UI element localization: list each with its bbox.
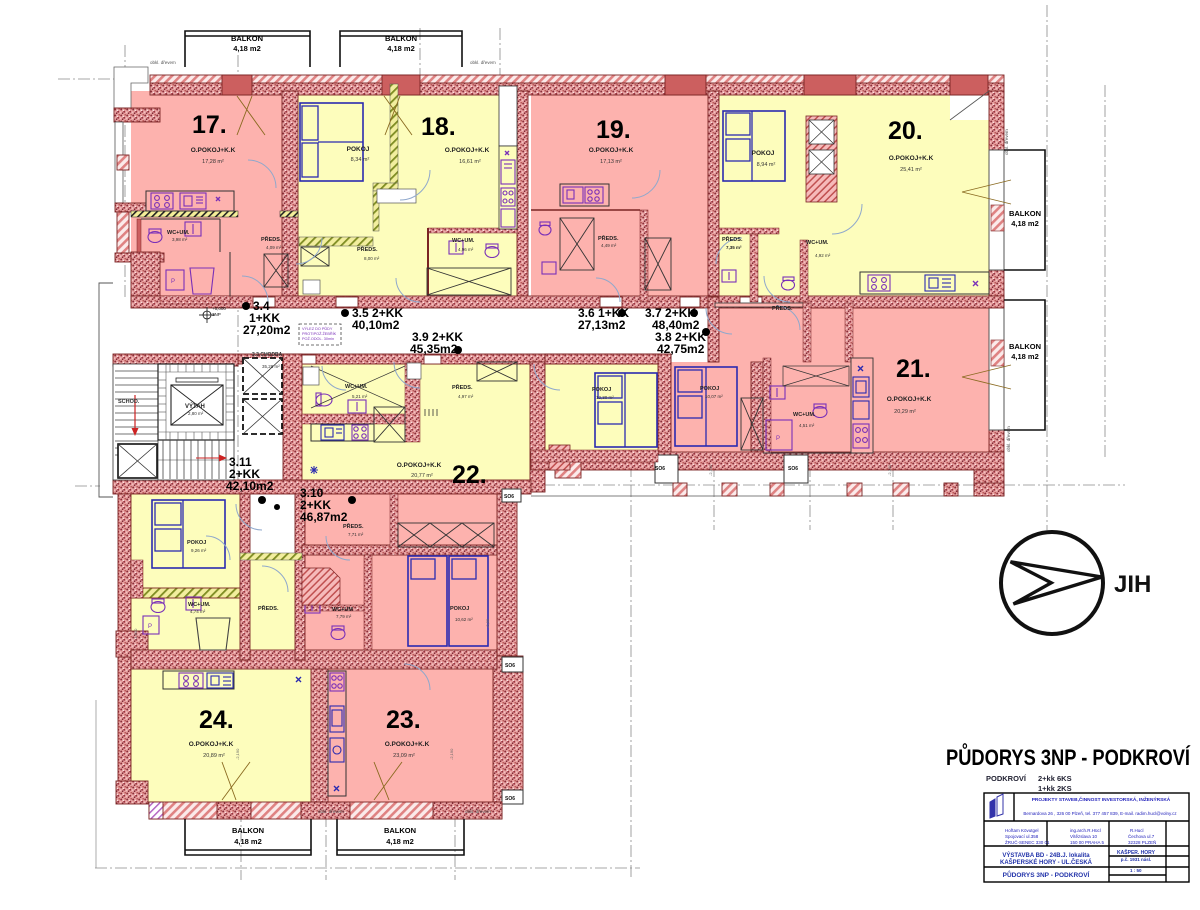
svg-text:20,77 m²: 20,77 m² xyxy=(411,473,433,479)
svg-text:WC+UM: WC+UM xyxy=(332,607,353,613)
svg-text:SO6: SO6 xyxy=(505,796,515,802)
svg-text:p.č. 1931 násl.: p.č. 1931 násl. xyxy=(1121,857,1152,862)
svg-text:P: P xyxy=(776,436,780,442)
svg-text:PŘEDS.: PŘEDS. xyxy=(722,235,743,243)
svg-text:-2,190: -2,190 xyxy=(708,464,713,476)
svg-text:P: P xyxy=(171,279,175,285)
svg-text:150 00 PRAHA 5: 150 00 PRAHA 5 xyxy=(1070,840,1105,845)
svg-text:POKOJ: POKOJ xyxy=(187,540,206,546)
svg-text:7,79 m²: 7,79 m² xyxy=(336,614,352,619)
svg-text:4,18 m2: 4,18 m2 xyxy=(1011,352,1039,361)
svg-text:20.: 20. xyxy=(888,117,923,145)
svg-text:-2,190: -2,190 xyxy=(235,748,240,760)
svg-text:42,75m2: 42,75m2 xyxy=(657,342,705,356)
svg-text:4,92 m²: 4,92 m² xyxy=(815,253,831,258)
svg-text:12,30 m²: 12,30 m² xyxy=(596,395,614,400)
svg-text:4,49 m²: 4,49 m² xyxy=(601,243,617,248)
svg-text:25,41 m²: 25,41 m² xyxy=(900,167,922,173)
svg-text:10,62 m²: 10,62 m² xyxy=(455,617,473,622)
svg-text:+6,000: +6,000 xyxy=(212,306,226,311)
svg-text:BALKON: BALKON xyxy=(1009,209,1041,218)
svg-text:4,18 m2: 4,18 m2 xyxy=(387,44,415,53)
svg-text:BALKON: BALKON xyxy=(385,34,417,43)
svg-text:KAŠPER. HORY: KAŠPER. HORY xyxy=(1117,848,1156,856)
svg-text:O.POKOJ+K.K: O.POKOJ+K.K xyxy=(589,147,634,154)
svg-text:obkl. dřevem: obkl. dřevem xyxy=(150,60,176,65)
svg-text:POŽ.ODOL. 30min: POŽ.ODOL. 30min xyxy=(302,336,334,341)
svg-text:-1,800: -1,800 xyxy=(133,628,138,640)
svg-text:22.: 22. xyxy=(452,461,487,489)
svg-text:Vítězslava 10: Vítězslava 10 xyxy=(1070,834,1098,839)
svg-text:VÝTAH: VÝTAH xyxy=(185,403,205,410)
svg-text:BALKON: BALKON xyxy=(231,34,263,43)
svg-text:42,10m2: 42,10m2 xyxy=(226,479,274,493)
svg-text:32328 PLZEŇ: 32328 PLZEŇ xyxy=(1128,839,1156,845)
svg-text:-2,190: -2,190 xyxy=(887,464,892,476)
svg-text:POKOJ: POKOJ xyxy=(347,146,370,153)
svg-text:WC+UM.: WC+UM. xyxy=(793,412,816,418)
svg-text:R.Hucl: R.Hucl xyxy=(1130,828,1144,833)
svg-text:16,61 m²: 16,61 m² xyxy=(459,159,481,165)
svg-text:VÝSTAVBA BD - 24B.J. lokalit: VÝSTAVBA BD - 24B.J. lokalita xyxy=(1002,852,1090,859)
svg-text:8,34 m²: 8,34 m² xyxy=(351,157,370,163)
svg-text:PŘEDS.: PŘEDS. xyxy=(598,234,619,242)
svg-text:4,18 m2: 4,18 m2 xyxy=(233,44,261,53)
svg-text:POKOJ: POKOJ xyxy=(450,606,469,612)
svg-text:20,29 m²: 20,29 m² xyxy=(894,409,916,415)
svg-text:17,13 m²: 17,13 m² xyxy=(600,159,622,165)
svg-text:PŘEDS.: PŘEDS. xyxy=(261,235,282,243)
svg-text:35,28 m²: 35,28 m² xyxy=(262,364,280,369)
svg-text:SO6: SO6 xyxy=(505,663,515,669)
svg-text:O.POKOJ+K.K: O.POKOJ+K.K xyxy=(889,155,934,162)
svg-text:20,89 m²: 20,89 m² xyxy=(203,753,225,759)
svg-text:PODKROVÍ: PODKROVÍ xyxy=(986,774,1027,783)
svg-text:BALKON: BALKON xyxy=(1009,342,1041,351)
svg-text:1+kk 2KS: 1+kk 2KS xyxy=(1038,784,1072,793)
svg-text:23,09 m²: 23,09 m² xyxy=(393,753,415,759)
svg-text:obkl. dřevem: obkl. dřevem xyxy=(1004,129,1009,155)
svg-text:3NP: 3NP xyxy=(212,312,221,317)
svg-text:18.: 18. xyxy=(421,113,456,141)
svg-text:Bernardova 26 , 326 00 Plzeň,: Bernardova 26 , 326 00 Plzeň, tel. 377 4… xyxy=(1023,811,1177,816)
svg-text:ŽRUČ-SENEC 330 01: ŽRUČ-SENEC 330 01 xyxy=(1005,838,1050,845)
svg-text:O.POKOJ+K.K: O.POKOJ+K.K xyxy=(191,147,236,154)
svg-text:4,18 m2: 4,18 m2 xyxy=(1011,219,1039,228)
svg-text:8,94 m²: 8,94 m² xyxy=(757,162,776,168)
svg-text:17.: 17. xyxy=(192,111,227,139)
svg-text:VÝLEZ DO PŮDY: VÝLEZ DO PŮDY xyxy=(302,326,333,331)
svg-text:23.: 23. xyxy=(386,706,421,734)
svg-text:SCHOD.: SCHOD. xyxy=(118,399,140,405)
svg-text:obkl. dřevem: obkl. dřevem xyxy=(318,809,344,814)
svg-text:27,13m2: 27,13m2 xyxy=(578,318,626,332)
svg-text:21.: 21. xyxy=(896,355,931,383)
svg-text:PROTIPOŽ.ŽEBŘÍK: PROTIPOŽ.ŽEBŘÍK xyxy=(302,331,337,336)
svg-text:O.POKOJ+K.K: O.POKOJ+K.K xyxy=(397,462,442,469)
svg-text:O.POKOJ+K.K: O.POKOJ+K.K xyxy=(445,147,490,154)
svg-text:4,18 m2: 4,18 m2 xyxy=(386,837,414,846)
svg-text:4,74 m²: 4,74 m² xyxy=(190,609,206,614)
svg-text:5,21 m²: 5,21 m² xyxy=(352,394,368,399)
svg-text:PŘEDS.: PŘEDS. xyxy=(258,604,279,612)
svg-text:BALKON: BALKON xyxy=(384,826,416,835)
svg-text:9,26 m²: 9,26 m² xyxy=(191,548,207,553)
svg-text:Čechova ul.7: Čechova ul.7 xyxy=(1128,833,1155,839)
svg-text:4,09 m²: 4,09 m² xyxy=(266,245,282,250)
svg-text:PŘEDS.: PŘEDS. xyxy=(452,383,473,391)
svg-text:8,00 m²: 8,00 m² xyxy=(364,256,380,261)
svg-text:-0,80: -0,80 xyxy=(485,618,490,628)
svg-text:2,80 m²: 2,80 m² xyxy=(188,411,204,416)
svg-text:4,18 m2: 4,18 m2 xyxy=(234,837,262,846)
svg-text:3,98 m²: 3,98 m² xyxy=(172,237,188,242)
svg-text:P: P xyxy=(148,624,152,630)
svg-text:POKOJ: POKOJ xyxy=(700,386,719,392)
svg-text:O.POKOJ+K.K: O.POKOJ+K.K xyxy=(887,396,932,403)
svg-text:PŘEDS.: PŘEDS. xyxy=(772,304,793,312)
svg-text:SO6: SO6 xyxy=(655,466,665,472)
svg-text:27,20m2: 27,20m2 xyxy=(243,323,291,337)
svg-text:1 : 50: 1 : 50 xyxy=(1130,868,1142,873)
svg-text:2+kk 6KS: 2+kk 6KS xyxy=(1038,774,1072,783)
svg-text:WC+UM.: WC+UM. xyxy=(188,602,211,608)
svg-text:4,97 m²: 4,97 m² xyxy=(458,394,474,399)
svg-text:10,07 m²: 10,07 m² xyxy=(705,394,723,399)
svg-text:WC+UM.: WC+UM. xyxy=(806,240,829,246)
svg-text:7,71 m²: 7,71 m² xyxy=(348,532,364,537)
svg-text:19.: 19. xyxy=(596,116,631,144)
svg-text:PŮDORYS 3NP - PODKROVÍ: PŮDORYS 3NP - PODKROVÍ xyxy=(946,742,1191,770)
svg-text:WC+UM.: WC+UM. xyxy=(345,384,368,390)
svg-text:Hořtam Kövutgel: Hořtam Kövutgel xyxy=(1005,828,1039,833)
svg-text:Spojovací ul.358: Spojovací ul.358 xyxy=(1005,834,1039,839)
svg-text:7,35 m²: 7,35 m² xyxy=(726,245,742,250)
svg-text:SO6: SO6 xyxy=(788,466,798,472)
svg-text:KAŠPERSKÉ HORY - UL.ČESKÁ: KAŠPERSKÉ HORY - UL.ČESKÁ xyxy=(1000,858,1093,866)
svg-text:SO6: SO6 xyxy=(504,494,514,500)
svg-text:46,87m2: 46,87m2 xyxy=(300,510,348,524)
svg-text:45,35m2: 45,35m2 xyxy=(410,342,458,356)
svg-text:-2,190: -2,190 xyxy=(449,748,454,760)
svg-text:O.POKOJ+K.K: O.POKOJ+K.K xyxy=(189,741,234,748)
svg-text:WC+UM.: WC+UM. xyxy=(452,238,475,244)
svg-text:BALKON: BALKON xyxy=(232,826,264,835)
svg-text:PŘEDS.: PŘEDS. xyxy=(357,245,378,253)
svg-text:WC+UM.: WC+UM. xyxy=(167,230,190,236)
svg-text:JIH: JIH xyxy=(1114,571,1151,598)
svg-text:obkl. dřevem: obkl. dřevem xyxy=(470,60,496,65)
svg-text:POKOJ: POKOJ xyxy=(752,150,775,157)
svg-text:3.3 CHODBA: 3.3 CHODBA xyxy=(252,352,283,358)
svg-text:24.: 24. xyxy=(199,706,234,734)
svg-text:40,10m2: 40,10m2 xyxy=(352,318,400,332)
svg-text:obkl. dřevem: obkl. dřevem xyxy=(465,809,491,814)
svg-text:17,28 m²: 17,28 m² xyxy=(202,159,224,165)
svg-text:O.POKOJ+K.K: O.POKOJ+K.K xyxy=(385,741,430,748)
svg-text:4,96 m²: 4,96 m² xyxy=(458,247,474,252)
svg-text:obkl. dřevem: obkl. dřevem xyxy=(1006,426,1011,452)
svg-text:POKOJ: POKOJ xyxy=(592,387,611,393)
svg-text:ing.arch.R.Hücl: ing.arch.R.Hücl xyxy=(1070,828,1101,833)
svg-text:4,51 m²: 4,51 m² xyxy=(799,423,815,428)
